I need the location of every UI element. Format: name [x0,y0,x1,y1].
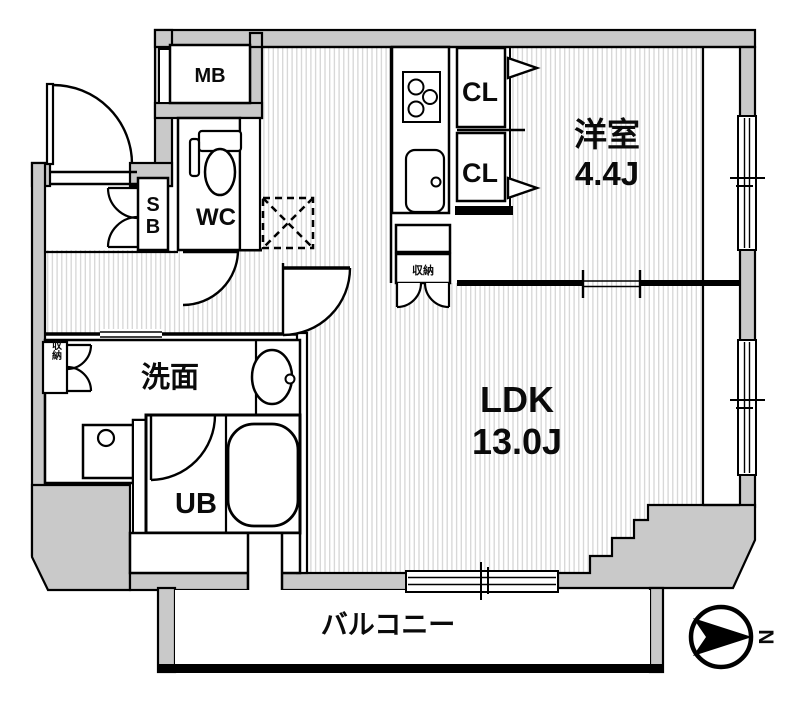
closet-lower-label: CL [462,158,498,188]
wall-southwest-corner [32,485,130,590]
wall-east-middle [740,248,755,342]
shoe-box-letter-b: B [146,216,160,238]
meter-box-door [159,49,170,103]
drain-shaft [248,533,282,595]
floor-plan-canvas: N MB WC S B CL CL 収納 収納 洋室 4.4J LDK 13.0… [0,0,800,712]
balcony-parapet [158,664,663,673]
washing-machine-drain [98,430,114,446]
shoe-box-letter-s: S [146,194,159,216]
toilet-east-wall [240,118,260,250]
closet-base-bar [455,206,513,215]
wall-east-lower [740,473,755,507]
washroom-label: 洗面 [141,361,199,394]
closet-upper-label: CL [462,77,498,107]
unit-bath-label: UB [175,488,217,520]
burner-1 [409,80,424,95]
floor-plan: N MB WC S B CL CL 収納 収納 洋室 4.4J LDK 13.0… [0,0,800,712]
burner-2 [423,90,437,104]
window-western-room [738,116,756,250]
balcony-label: バルコニー [321,610,455,640]
unit-bath-west-wall [133,420,146,533]
western-room-name: 洋室 [574,116,640,153]
wall-east-upper [740,47,755,118]
burner-3 [409,102,424,117]
ldk-name: LDK [480,379,554,420]
wall-south-2 [280,573,408,590]
ldk-size: 13.0J [472,421,562,462]
wall-mb-bottom [155,103,262,118]
toilet-label: WC [196,204,236,231]
western-room-size: 4.4J [575,155,639,192]
compass-north-label: N [754,629,777,644]
entrance-door-leaf [47,84,53,164]
washroom-tap [286,375,295,384]
wall-south-1 [130,573,248,590]
hallway-floor [45,250,290,333]
kitchen-cabinet [396,225,450,252]
kitchen-tap [432,178,441,187]
kitchen-corridor-floor [262,47,390,283]
meter-box-label: MB [194,65,225,87]
balcony-wall-left [158,588,175,672]
washroom-storage-label: 収納 [50,340,62,361]
bathtub [228,424,298,526]
kitchen-storage-label: 収納 [412,263,434,277]
balcony-wall-right [650,588,663,672]
